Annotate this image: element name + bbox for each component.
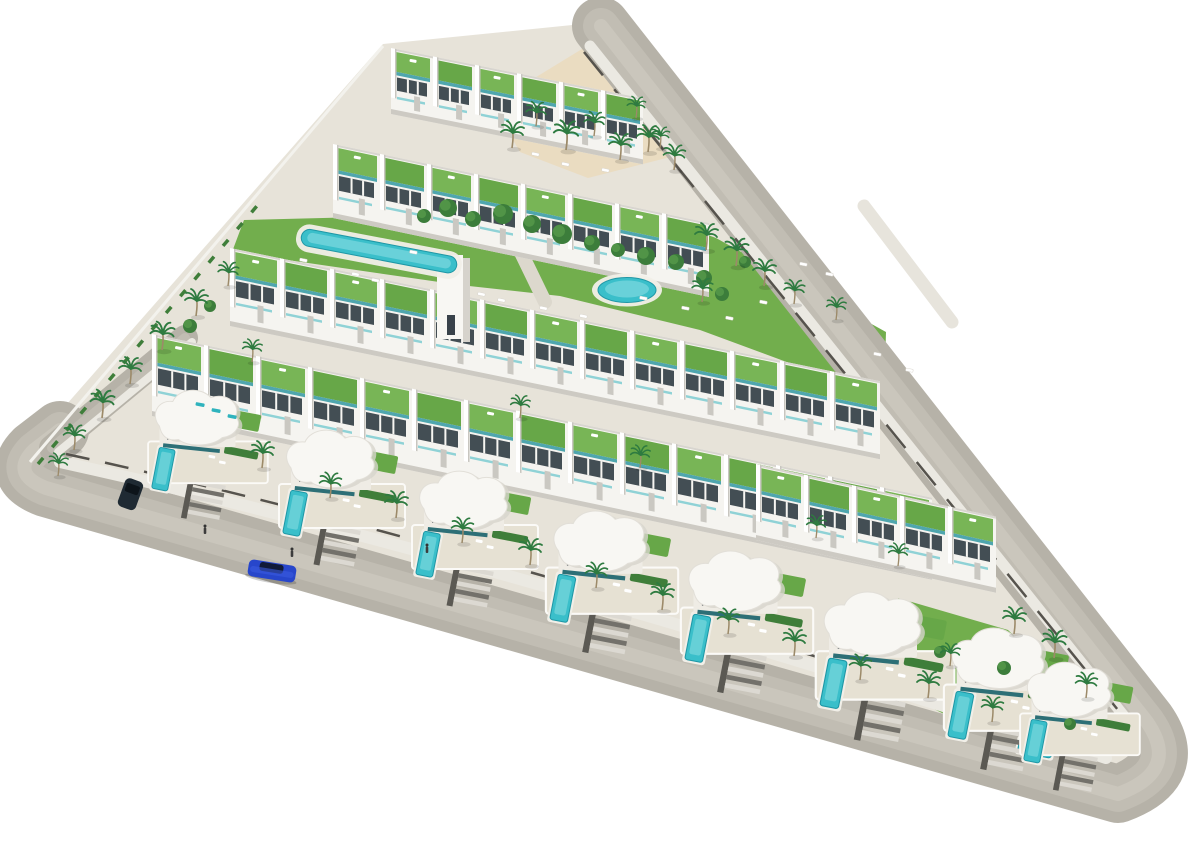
partition-wall — [360, 378, 364, 440]
entry-door — [414, 96, 420, 112]
partition-wall — [730, 351, 734, 410]
partition-wall — [230, 248, 234, 307]
partition-wall — [630, 330, 634, 389]
entry-door — [649, 492, 655, 511]
partition-wall — [756, 464, 760, 522]
partition-wall — [620, 432, 624, 494]
entry-door — [456, 105, 462, 121]
partition-wall — [391, 48, 395, 98]
entry-door — [498, 113, 504, 129]
entry-door — [582, 130, 588, 146]
partition-wall — [430, 289, 434, 348]
entry-door — [658, 387, 664, 405]
partition-wall — [308, 367, 312, 429]
entry-door — [441, 449, 447, 468]
entry-door — [547, 238, 553, 256]
entry-door — [500, 228, 506, 246]
entry-door — [974, 562, 980, 580]
partition-wall — [517, 73, 521, 123]
partition-wall — [152, 334, 156, 396]
entry-door — [782, 520, 788, 538]
pedestrian — [204, 525, 207, 535]
partition-wall — [601, 90, 605, 140]
partition-wall — [662, 213, 666, 269]
entry-door — [453, 218, 459, 236]
entry-door — [408, 336, 414, 354]
entry-door — [493, 460, 499, 479]
partition-wall — [724, 454, 728, 516]
partition-wall — [680, 340, 684, 399]
entry-door — [358, 326, 364, 344]
partition-wall — [948, 506, 952, 564]
partition-wall — [568, 421, 572, 483]
partition-wall — [580, 320, 584, 379]
partition-wall — [852, 485, 856, 543]
partition-wall — [830, 371, 834, 430]
entry-door — [808, 418, 814, 436]
partition-wall — [412, 389, 416, 451]
entry-door — [258, 305, 264, 323]
tower-door — [447, 315, 455, 335]
render-stage — [0, 0, 1204, 853]
entry-door — [688, 267, 694, 285]
entry-door — [608, 377, 614, 395]
entry-door — [508, 356, 514, 374]
pedestrian — [426, 544, 429, 554]
entry-door — [708, 397, 714, 415]
entry-door — [858, 428, 864, 446]
partition-wall — [380, 154, 384, 210]
entry-door — [406, 208, 412, 226]
walkway — [864, 206, 952, 322]
entry-door — [597, 481, 603, 500]
partition-wall — [475, 65, 479, 115]
entry-door — [308, 315, 314, 333]
entry-door — [359, 198, 365, 216]
partition-wall — [280, 258, 284, 317]
partition-wall — [530, 310, 534, 369]
partition-wall — [256, 356, 260, 418]
entry-door — [926, 552, 932, 570]
partition-wall — [433, 56, 437, 106]
partition-wall — [330, 269, 334, 328]
entry-door — [758, 408, 764, 426]
partition-wall — [333, 144, 337, 200]
partition-wall — [464, 400, 468, 462]
entry-door — [558, 367, 564, 385]
pedestrian — [291, 548, 294, 558]
entry-door — [545, 471, 551, 490]
development-aerial-render — [0, 0, 1204, 853]
entry-door — [285, 416, 291, 435]
partition-wall — [780, 361, 784, 420]
entry-door — [389, 438, 395, 457]
partition-wall — [380, 279, 384, 338]
entry-door — [701, 503, 707, 522]
entry-door — [830, 531, 836, 549]
partition-wall — [521, 183, 525, 239]
entry-door — [458, 346, 464, 364]
partition-wall — [672, 443, 676, 505]
partition-wall — [480, 299, 484, 358]
entry-door — [878, 541, 884, 559]
